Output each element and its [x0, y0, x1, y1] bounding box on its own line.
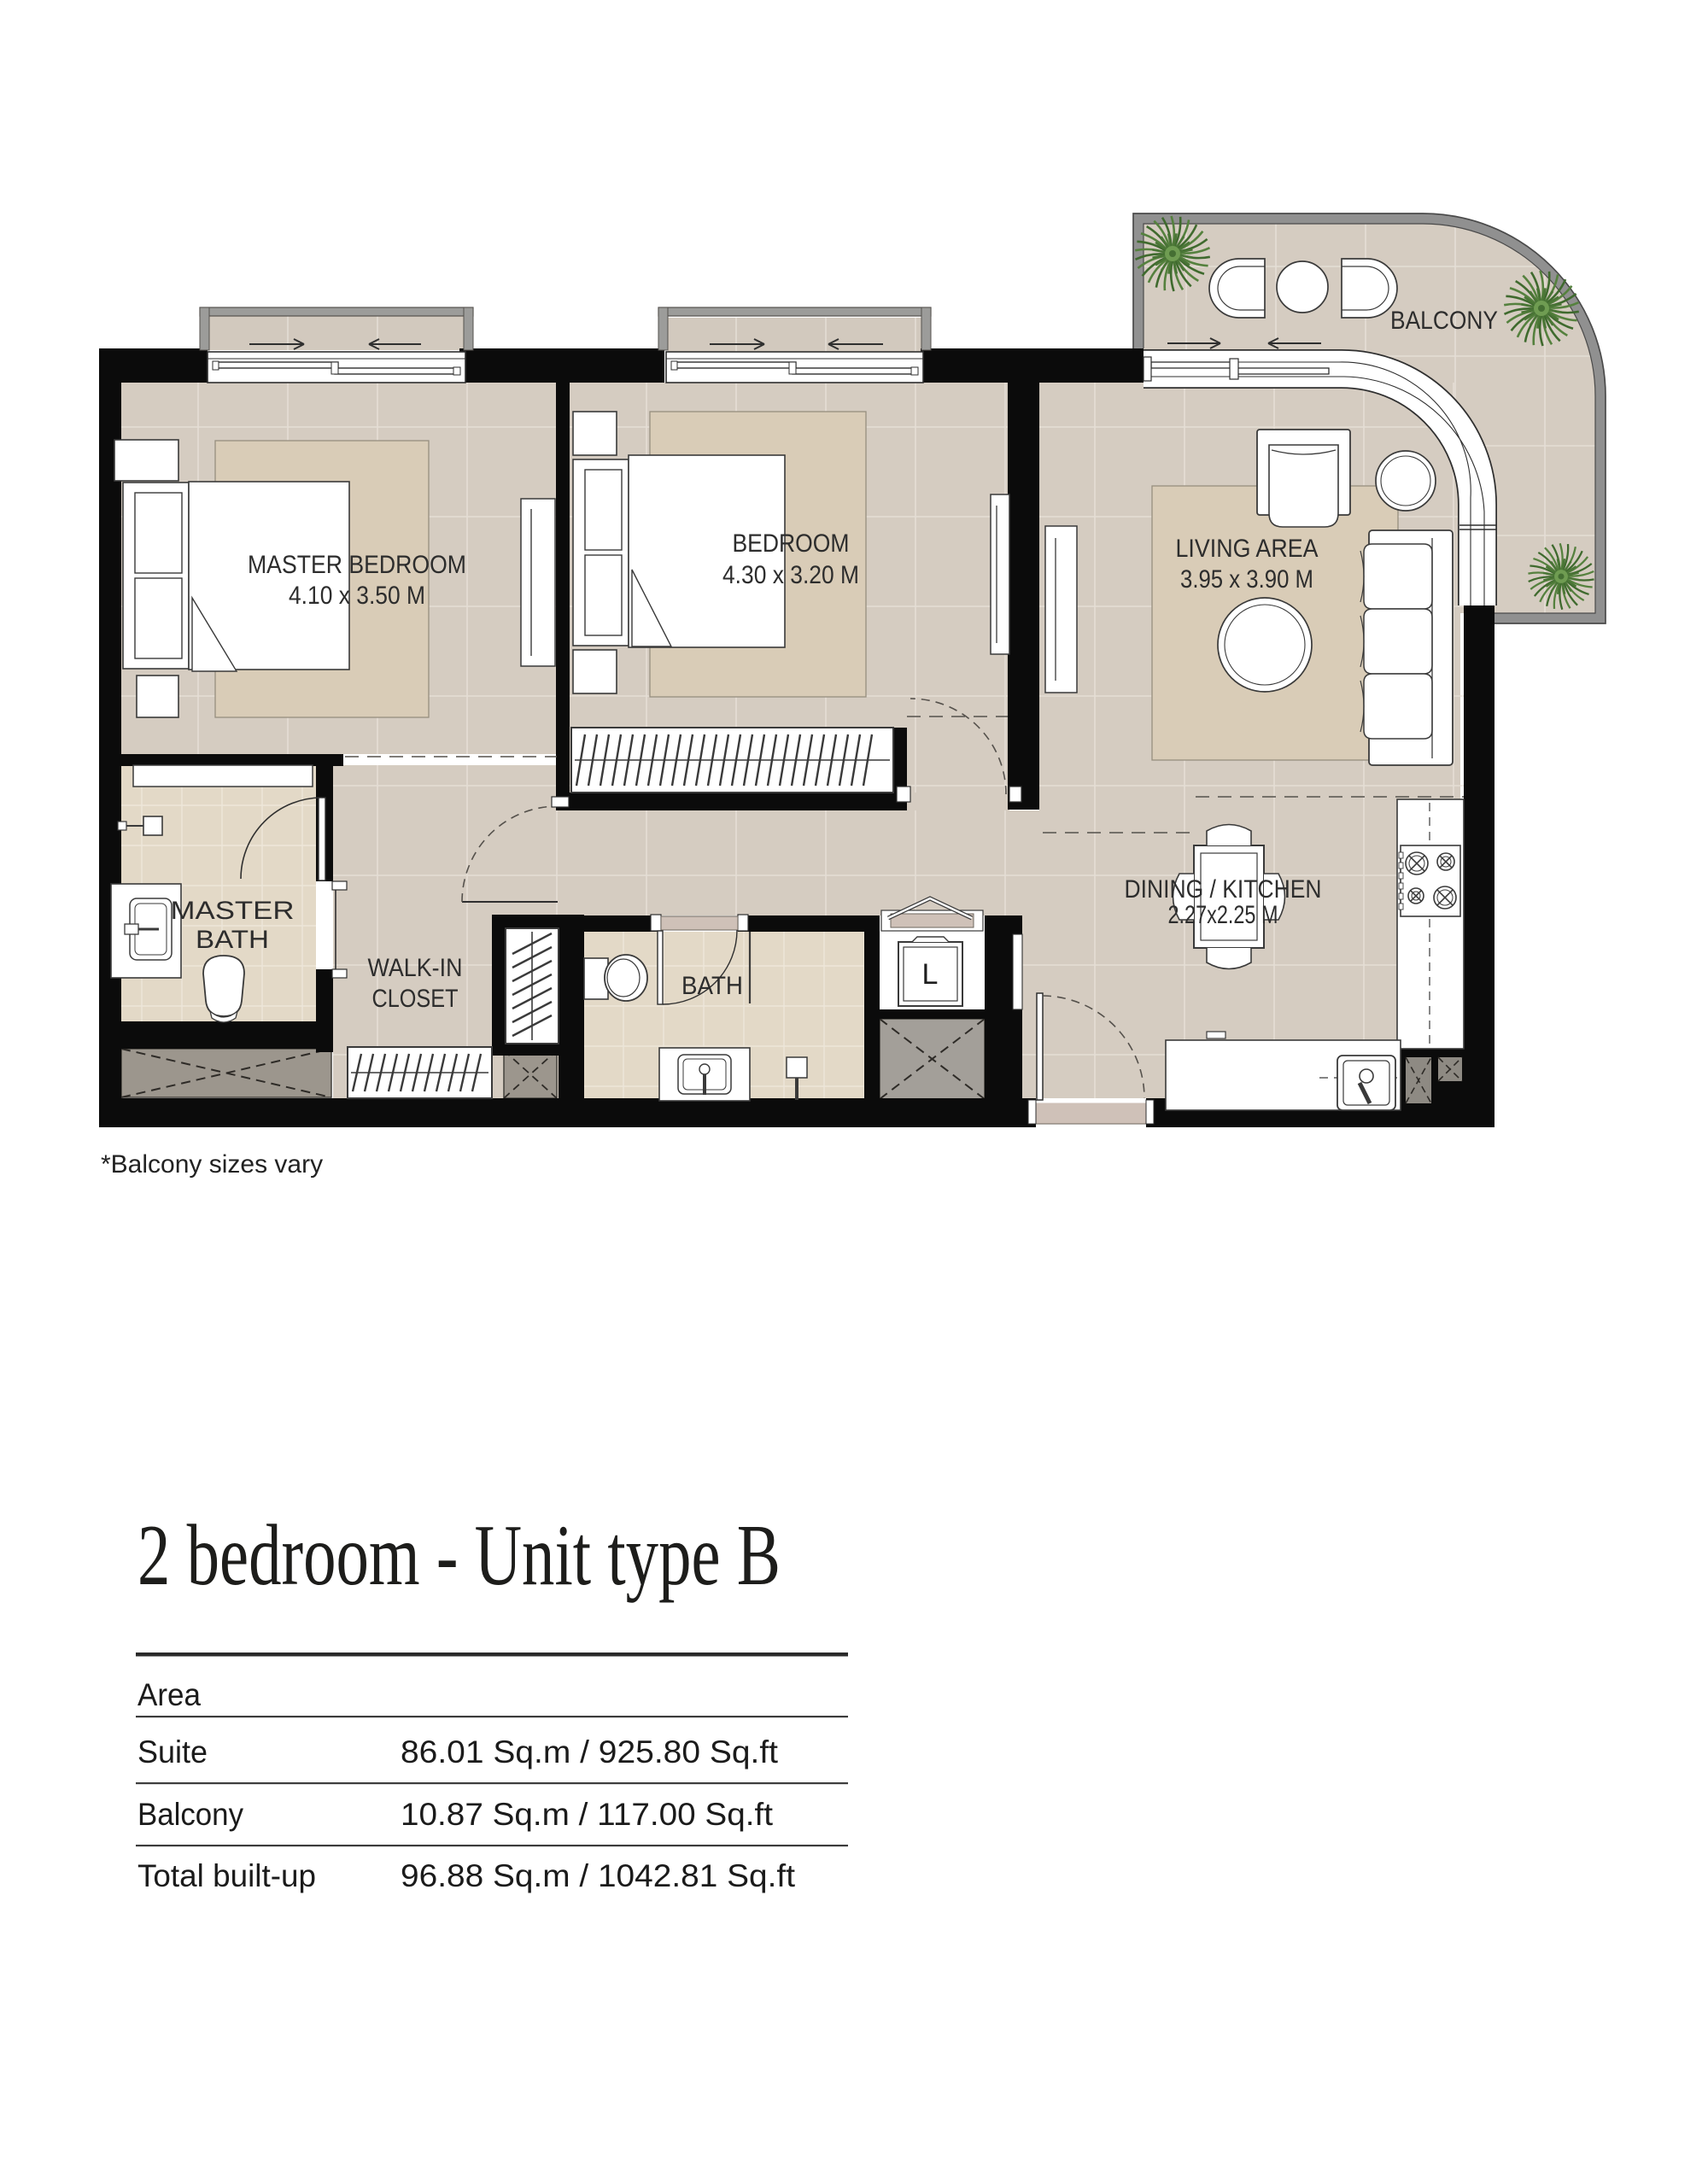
svg-text:Suite: Suite: [137, 1734, 208, 1769]
svg-text:96.88 Sq.m / 1042.81 Sq.ft: 96.88 Sq.m / 1042.81 Sq.ft: [401, 1858, 796, 1893]
svg-text:MASTER: MASTER: [171, 897, 295, 925]
svg-text:LIVING AREA: LIVING AREA: [1176, 535, 1319, 563]
svg-text:4.10 x 3.50 M: 4.10 x 3.50 M: [289, 582, 425, 610]
svg-text:L: L: [922, 958, 939, 991]
svg-text:Area: Area: [137, 1677, 201, 1712]
svg-text:BATH: BATH: [196, 926, 269, 954]
svg-text:BEDROOM: BEDROOM: [733, 529, 850, 558]
svg-text:MASTER BEDROOM: MASTER BEDROOM: [248, 551, 466, 579]
svg-text:*Balcony sizes vary: *Balcony sizes vary: [101, 1150, 323, 1179]
svg-text:3.95 x 3.90 M: 3.95 x 3.90 M: [1180, 565, 1313, 594]
svg-text:2 bedroom - Unit type B: 2 bedroom - Unit type B: [137, 1507, 781, 1604]
svg-text:WALK-IN: WALK-IN: [368, 954, 463, 982]
svg-text:BALCONY: BALCONY: [1390, 307, 1498, 335]
svg-text:Total built-up: Total built-up: [137, 1858, 316, 1893]
svg-text:4.30 x 3.20 M: 4.30 x 3.20 M: [722, 561, 859, 589]
svg-text:10.87 Sq.m / 117.00 Sq.ft: 10.87 Sq.m / 117.00 Sq.ft: [401, 1797, 774, 1832]
svg-text:BATH: BATH: [681, 972, 743, 1000]
svg-text:DINING / KITCHEN: DINING / KITCHEN: [1125, 875, 1322, 904]
svg-text:Balcony: Balcony: [137, 1797, 243, 1832]
svg-text:2.27x2.25 M: 2.27x2.25 M: [1168, 901, 1278, 929]
svg-text:86.01 Sq.m / 925.80 Sq.ft: 86.01 Sq.m / 925.80 Sq.ft: [401, 1734, 779, 1769]
svg-text:CLOSET: CLOSET: [372, 985, 459, 1013]
